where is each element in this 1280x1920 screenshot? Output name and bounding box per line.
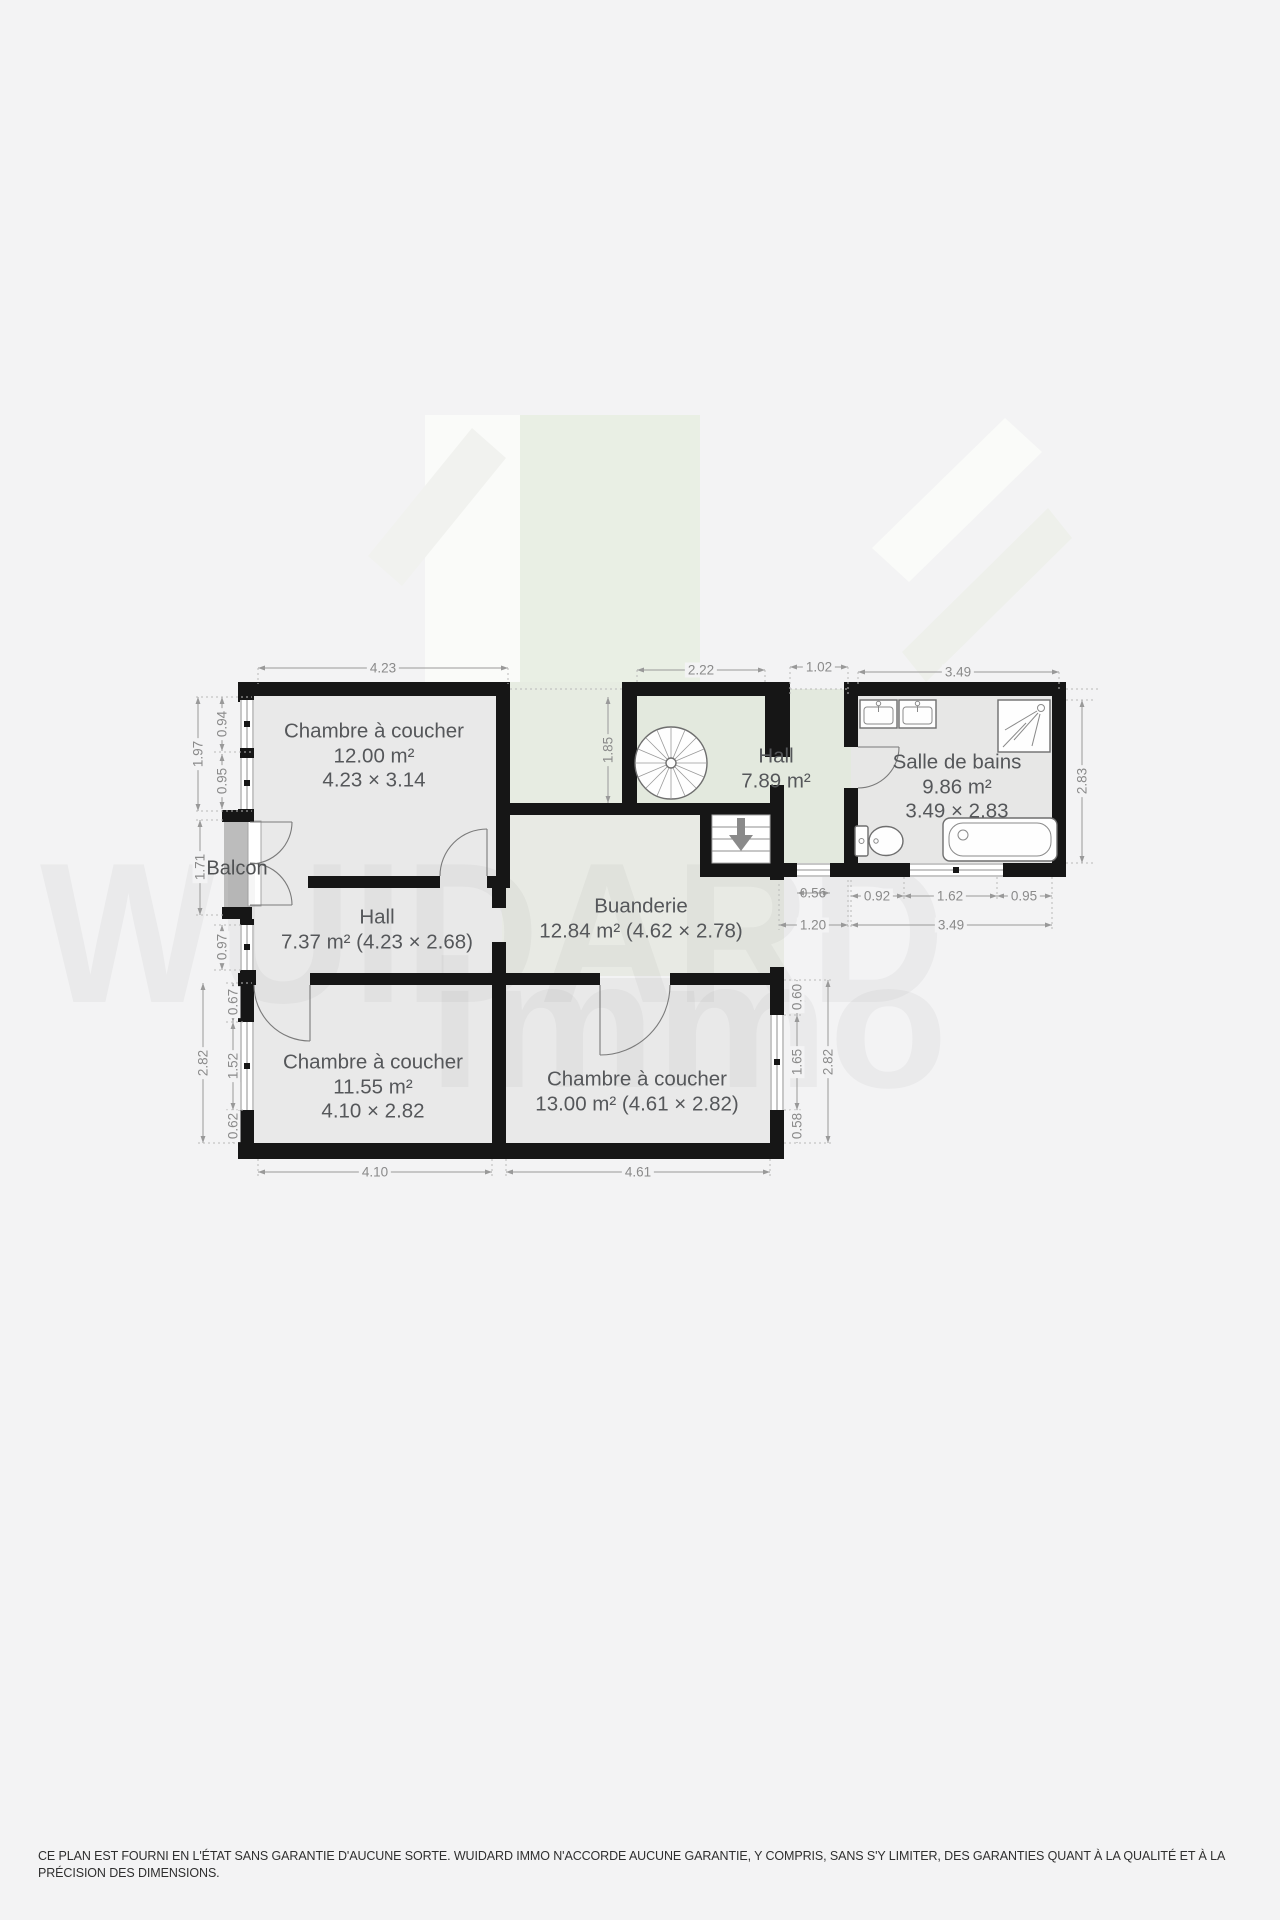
dim-label: 4.23 (367, 661, 399, 676)
dim-label: 0.97 (215, 931, 230, 963)
room-area: 7.89 m² (741, 769, 811, 794)
dim-label: 2.83 (1075, 765, 1090, 797)
dim-label: 1.71 (193, 851, 208, 883)
room-label-hall-upper: Hall 7.89 m² (741, 745, 811, 794)
shower-icon (998, 700, 1050, 752)
room-label-laundry: Buanderie 12.84 m² (4.62 × 2.78) (539, 895, 742, 944)
room-details: 7.37 m² (4.23 × 2.68) (281, 930, 473, 955)
window-icon (770, 1015, 784, 1110)
dim-label: 0.60 (790, 981, 805, 1013)
dim-label: 1.65 (790, 1046, 805, 1078)
dim-label: 4.61 (622, 1165, 654, 1180)
bathtub-icon (943, 818, 1057, 861)
dim-label: 4.10 (359, 1165, 391, 1180)
sink-icon (899, 700, 936, 728)
room-label-balcony: Balcon (206, 858, 267, 881)
window-icon (240, 1022, 254, 1110)
dim-label: 2.82 (821, 1046, 836, 1078)
room-label-bathroom: Salle de bains 9.86 m² 3.49 × 2.83 (893, 750, 1022, 824)
dim-label: 0.94 (215, 708, 230, 740)
dim-label: 1.52 (226, 1050, 241, 1082)
staircase-down-icon (712, 815, 770, 863)
window-icon (240, 758, 254, 809)
room-label-bedroom-top: Chambre à coucher 12.00 m² 4.23 × 3.14 (284, 719, 464, 793)
window-icon (910, 863, 1003, 877)
background-logo (368, 415, 1072, 688)
room-details: 12.84 m² (4.62 × 2.78) (539, 919, 742, 944)
dim-label: 2.22 (685, 663, 717, 678)
dim-label: 1.02 (803, 660, 835, 675)
room-size: 4.10 × 2.82 (283, 1099, 463, 1124)
room-size: 4.23 × 3.14 (284, 768, 464, 793)
room-details: 13.00 m² (4.61 × 2.82) (535, 1092, 738, 1117)
room-area: 11.55 m² (283, 1075, 463, 1100)
room-name: Buanderie (539, 895, 742, 920)
dim-label: 0.62 (226, 1110, 241, 1142)
dim-label: 0.95 (1008, 889, 1040, 904)
dim-label: 1.62 (934, 889, 966, 904)
dim-label: 0.67 (226, 986, 241, 1018)
room-name: Chambre à coucher (535, 1068, 738, 1093)
room-area: 9.86 m² (893, 775, 1022, 800)
dim-label: 2.82 (196, 1047, 211, 1079)
dim-label: 1.85 (601, 734, 616, 766)
sink-icon (860, 700, 897, 728)
window-icon (797, 863, 830, 877)
floor-plan: WUIDARD immo (0, 0, 1280, 1920)
dim-label: 0.95 (215, 765, 230, 797)
room-name: Hall (281, 906, 473, 931)
window-icon (240, 925, 254, 970)
spiral-staircase-icon (635, 727, 707, 799)
dim-label: 3.49 (935, 918, 967, 933)
dim-label: 0.56 (797, 886, 829, 901)
room-label-bedroom-left: Chambre à coucher 11.55 m² 4.10 × 2.82 (283, 1050, 463, 1124)
toilet-icon (855, 826, 903, 856)
room-name: Chambre à coucher (284, 719, 464, 744)
dim-label: 3.49 (942, 665, 974, 680)
dim-label: 1.20 (797, 918, 829, 933)
room-size: 3.49 × 2.83 (893, 799, 1022, 824)
room-name: Hall (741, 745, 811, 770)
dim-label: 1.97 (191, 738, 206, 770)
window-icon (240, 700, 254, 748)
disclaimer-text: CE PLAN EST FOURNI EN L'ÉTAT SANS GARANT… (38, 1848, 1250, 1882)
room-name: Salle de bains (893, 750, 1022, 775)
room-label-hall-lower: Hall 7.37 m² (4.23 × 2.68) (281, 906, 473, 955)
room-area: 12.00 m² (284, 744, 464, 769)
room-label-bedroom-right: Chambre à coucher 13.00 m² (4.61 × 2.82) (535, 1068, 738, 1117)
dim-label: 0.58 (790, 1110, 805, 1142)
room-name: Chambre à coucher (283, 1050, 463, 1075)
dim-label: 0.92 (861, 889, 893, 904)
floor-plan-page: WUIDARD immo (0, 0, 1280, 1920)
